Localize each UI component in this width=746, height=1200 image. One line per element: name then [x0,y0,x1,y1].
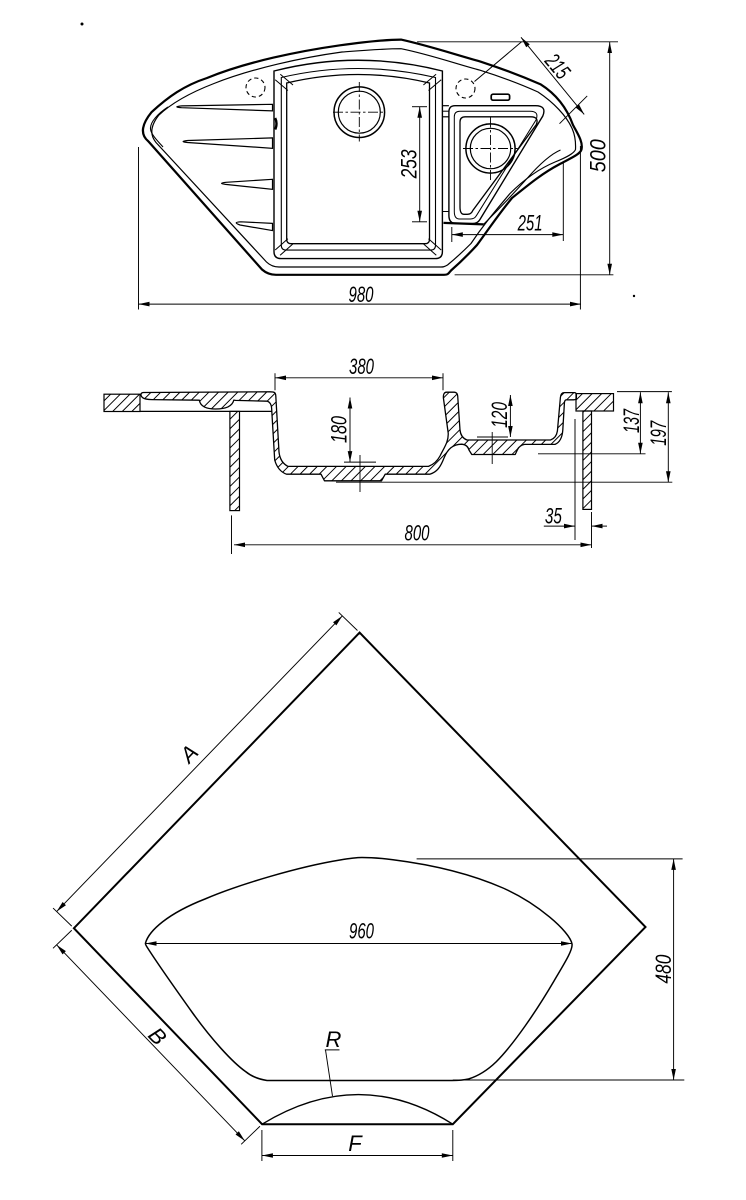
svg-text:500: 500 [585,139,610,173]
svg-text:800: 800 [405,520,431,545]
svg-text:R: R [326,1027,342,1052]
svg-text:F: F [348,1131,363,1156]
svg-text:480: 480 [651,954,676,984]
svg-text:980: 980 [349,282,375,307]
svg-text:215: 215 [540,48,576,84]
svg-text:120: 120 [487,401,512,428]
svg-text:253: 253 [396,149,421,179]
svg-text:197: 197 [646,420,671,446]
svg-text:180: 180 [326,415,351,443]
svg-text:960: 960 [349,918,375,943]
svg-text:380: 380 [349,354,375,379]
svg-text:35: 35 [545,503,563,528]
svg-text:251: 251 [517,211,543,236]
svg-text:137: 137 [619,409,644,433]
